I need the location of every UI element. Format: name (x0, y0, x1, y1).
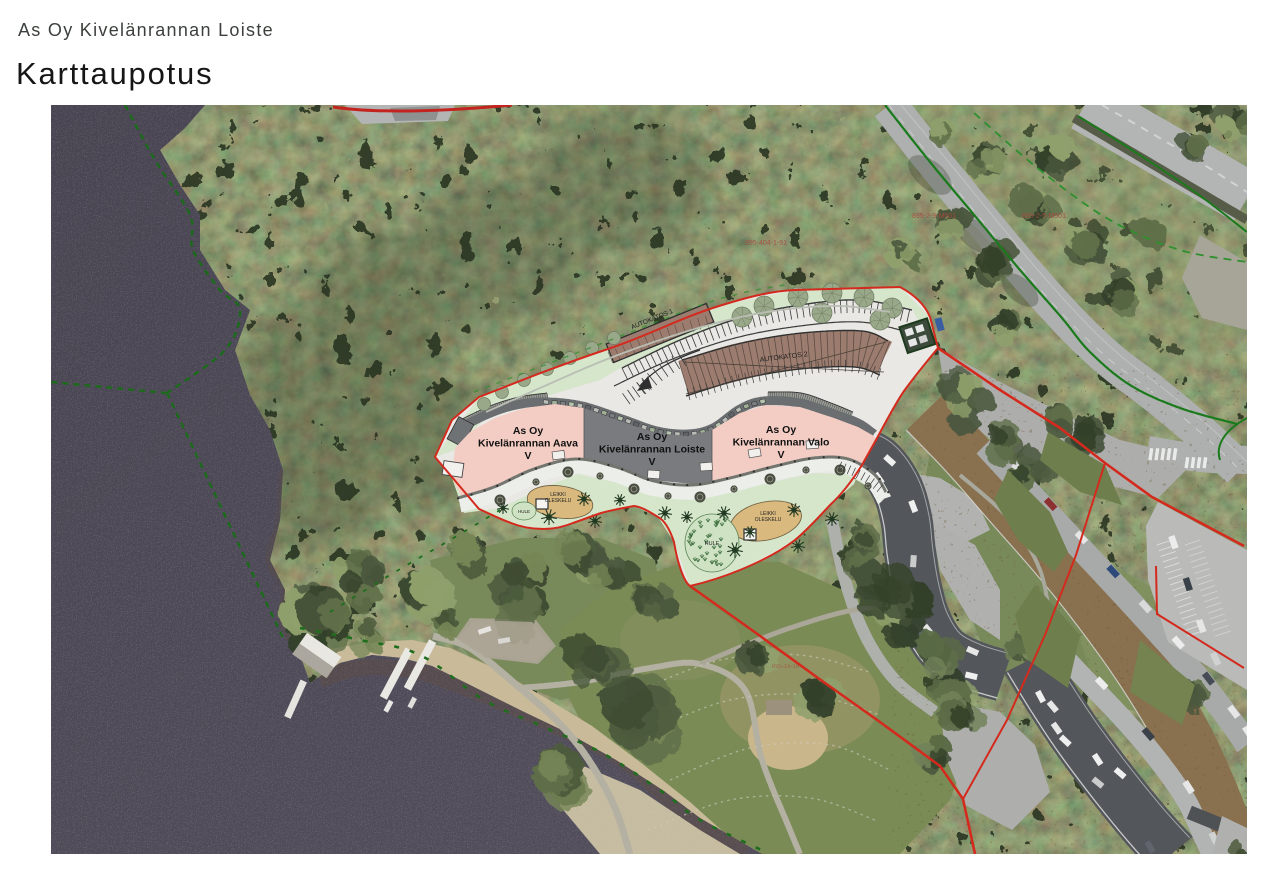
svg-text:895-15-18: 895-15-18 (772, 664, 800, 670)
svg-text:OLESKELU: OLESKELU (545, 498, 572, 504)
svg-text:HULE: HULE (518, 509, 530, 514)
svg-text:895-404-1-91: 895-404-1-91 (745, 240, 787, 247)
svg-text:895-2-5-M501: 895-2-5-M501 (1022, 213, 1066, 220)
svg-text:OLESKELU: OLESKELU (755, 517, 782, 523)
svg-text:HULE: HULE (705, 541, 720, 547)
svg-text:895-2-9-M501: 895-2-9-M501 (912, 213, 956, 220)
